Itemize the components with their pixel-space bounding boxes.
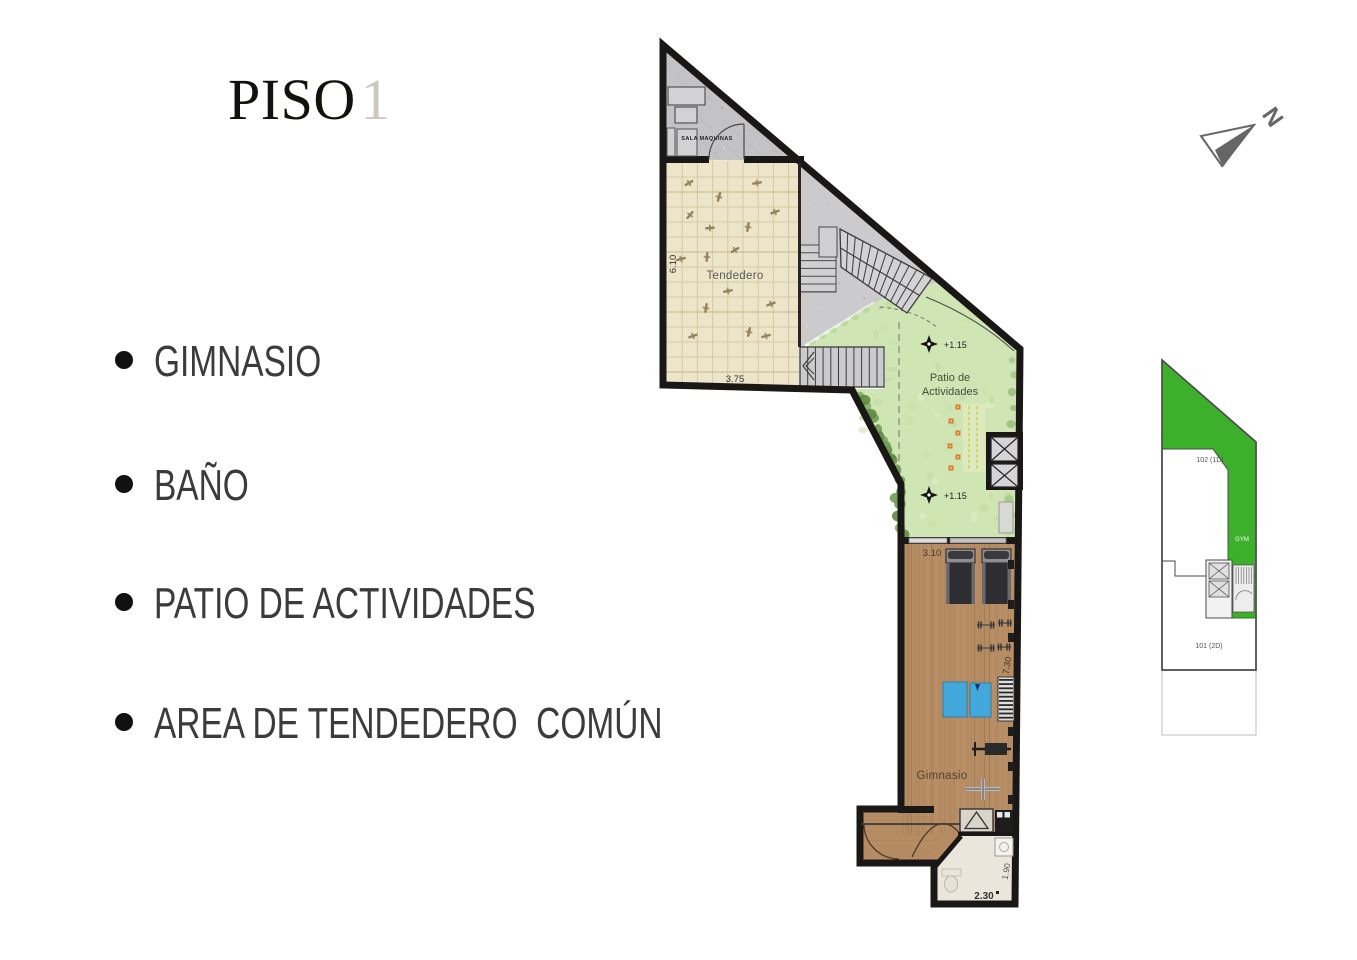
svg-text:Gimnasio: Gimnasio xyxy=(917,770,968,782)
svg-text:N: N xyxy=(1256,102,1288,132)
svg-text:Tendedero: Tendedero xyxy=(706,270,763,282)
svg-text:Actividades: Actividades xyxy=(922,386,979,398)
svg-text:102 (1D): 102 (1D) xyxy=(1196,457,1223,464)
svg-text:+1.15: +1.15 xyxy=(944,491,967,501)
svg-text:2.30: 2.30 xyxy=(974,891,994,902)
svg-text:Patio de: Patio de xyxy=(930,372,970,384)
svg-text:+1.15: +1.15 xyxy=(944,340,967,350)
svg-text:6.10: 6.10 xyxy=(668,255,679,274)
svg-text:GYM: GYM xyxy=(1235,537,1249,543)
svg-text:3.75: 3.75 xyxy=(726,374,745,385)
svg-text:101 (2D): 101 (2D) xyxy=(1195,643,1222,650)
svg-text:SALA MAQUINAS: SALA MAQUINAS xyxy=(681,136,732,142)
svg-text:3.10: 3.10 xyxy=(923,548,942,559)
